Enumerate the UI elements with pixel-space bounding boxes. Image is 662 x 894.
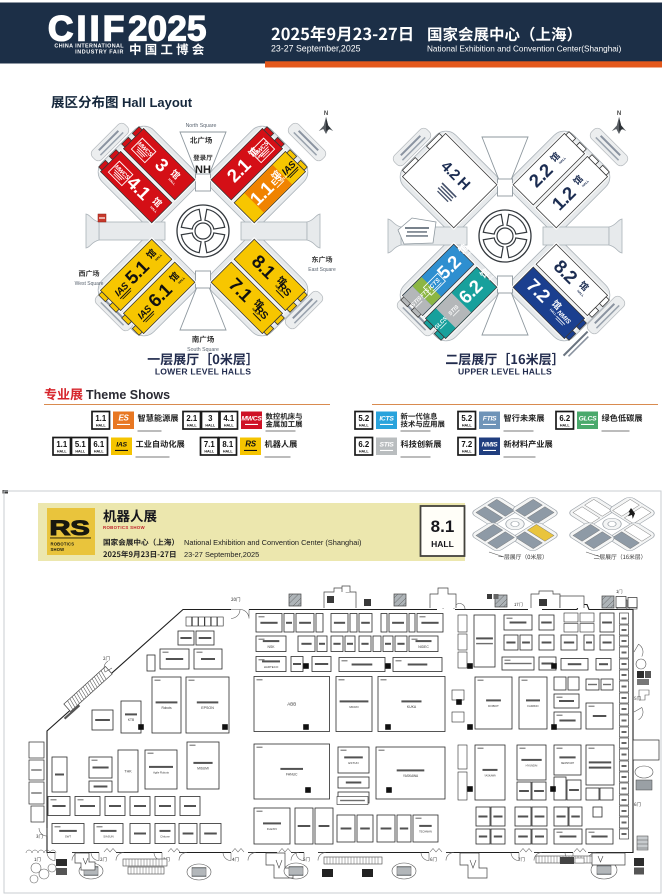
svg-text:National Exhibition and Conven: National Exhibition and Convention Cente… xyxy=(184,538,362,547)
svg-text:FLEXIV: FLEXIV xyxy=(267,827,277,831)
svg-text:ES: ES xyxy=(118,414,129,423)
svg-text:HALL: HALL xyxy=(462,450,473,454)
svg-text:ESTUN: ESTUN xyxy=(348,761,358,765)
svg-text:HARTECO: HARTECO xyxy=(264,665,279,669)
svg-text:MISUMI: MISUMI xyxy=(197,767,209,771)
svg-text:Chitone: Chitone xyxy=(160,835,170,839)
svg-text:HALL: HALL xyxy=(462,424,473,428)
svg-text:2.1: 2.1 xyxy=(186,414,198,423)
svg-text:ROBOTICS SHOW: ROBOTICS SHOW xyxy=(103,525,146,530)
svg-text:Hall Layout: Hall Layout xyxy=(122,95,193,110)
svg-text:6.1: 6.1 xyxy=(93,440,105,449)
svg-text:HALL: HALL xyxy=(359,424,370,428)
svg-text:NSK: NSK xyxy=(268,645,276,649)
svg-text:LOWER LEVEL HALLS: LOWER LEVEL HALLS xyxy=(155,367,251,377)
svg-text:5.2: 5.2 xyxy=(461,414,473,423)
svg-text:HALL: HALL xyxy=(560,424,571,428)
svg-text:5.2: 5.2 xyxy=(358,414,370,423)
svg-text:STIS: STIS xyxy=(380,442,395,449)
svg-text:YASKAWA: YASKAWA xyxy=(403,774,419,778)
svg-text:FANUC: FANUC xyxy=(286,773,298,777)
svg-text:ROBOTICS: ROBOTICS xyxy=(51,542,75,547)
svg-text:SIASUN: SIASUN xyxy=(103,835,113,839)
svg-text:THK: THK xyxy=(124,770,132,774)
svg-text:5.1: 5.1 xyxy=(75,440,87,449)
svg-text:IAS: IAS xyxy=(116,442,127,449)
svg-text:Robots: Robots xyxy=(161,706,172,710)
svg-text:ICTS: ICTS xyxy=(379,416,394,423)
svg-text:HALL: HALL xyxy=(224,424,235,428)
svg-text:NIDEC: NIDEC xyxy=(418,645,429,649)
svg-text:North Square: North Square xyxy=(186,123,217,129)
svg-text:UPPER LEVEL HALLS: UPPER LEVEL HALLS xyxy=(458,367,552,377)
svg-text:Theme Shows: Theme Shows xyxy=(86,388,170,402)
svg-text:N: N xyxy=(324,111,328,117)
svg-text:2025: 2025 xyxy=(128,10,207,49)
svg-text:DOBOT: DOBOT xyxy=(488,704,499,708)
svg-text:MWCS: MWCS xyxy=(241,416,262,423)
svg-text:7.2: 7.2 xyxy=(461,440,473,449)
svg-text:1.1: 1.1 xyxy=(95,414,107,423)
svg-text:23-27 September,2025: 23-27 September,2025 xyxy=(271,44,361,54)
svg-text:YASKAWA: YASKAWA xyxy=(484,775,496,778)
svg-text:23-27 September,2025: 23-27 September,2025 xyxy=(184,550,259,559)
svg-text:GLCS: GLCS xyxy=(579,416,597,423)
svg-text:N: N xyxy=(617,111,621,117)
svg-text:National Exhibition and Conven: National Exhibition and Convention Cente… xyxy=(427,45,622,54)
svg-text:MICRO: MICRO xyxy=(349,705,359,709)
svg-text:6.2: 6.2 xyxy=(358,440,370,449)
svg-text:HALL: HALL xyxy=(223,450,234,454)
svg-text:4.1: 4.1 xyxy=(223,414,235,423)
svg-text:6.2: 6.2 xyxy=(559,414,571,423)
svg-text:FAIRINO: FAIRINO xyxy=(527,704,539,708)
svg-text:HYUNDAI: HYUNDAI xyxy=(526,764,538,768)
svg-text:RS: RS xyxy=(245,440,256,449)
svg-text:KUKA: KUKA xyxy=(407,705,417,709)
svg-text:TECHMAN: TECHMAN xyxy=(419,830,432,834)
svg-text:RS: RS xyxy=(50,517,90,540)
svg-text:8.1: 8.1 xyxy=(222,440,234,449)
svg-text:HALL: HALL xyxy=(96,424,107,428)
svg-text:1.1: 1.1 xyxy=(56,440,68,449)
svg-text:East Square: East Square xyxy=(308,267,336,273)
svg-text:SHOW: SHOW xyxy=(51,547,65,552)
svg-text:HALL: HALL xyxy=(359,450,370,454)
svg-text:FTIS: FTIS xyxy=(483,416,497,423)
svg-text:HALL: HALL xyxy=(205,424,216,428)
svg-text:3: 3 xyxy=(208,414,213,423)
svg-text:EPSON: EPSON xyxy=(201,706,214,710)
svg-text:INDUSTRY FAIR: INDUSTRY FAIR xyxy=(75,50,124,56)
svg-text:Agile Robots: Agile Robots xyxy=(153,771,169,775)
svg-text:NMIS: NMIS xyxy=(482,442,499,449)
svg-text:HALL: HALL xyxy=(57,450,68,454)
svg-text:ABB: ABB xyxy=(287,702,296,707)
svg-text:NH: NH xyxy=(195,164,211,176)
svg-text:SWT: SWT xyxy=(65,835,72,839)
svg-text:7.1: 7.1 xyxy=(204,440,216,449)
svg-text:8.1: 8.1 xyxy=(431,517,455,536)
svg-text:HALL: HALL xyxy=(94,450,105,454)
svg-text:HALL: HALL xyxy=(204,450,215,454)
svg-text:West Square: West Square xyxy=(75,281,104,287)
svg-text:HALL: HALL xyxy=(187,424,198,428)
svg-text:HALL: HALL xyxy=(75,450,86,454)
svg-text:HALL: HALL xyxy=(431,539,454,549)
svg-text:South Square: South Square xyxy=(187,347,219,353)
svg-text:KTB: KTB xyxy=(128,718,134,722)
svg-text:NEWSTART: NEWSTART xyxy=(561,762,575,765)
